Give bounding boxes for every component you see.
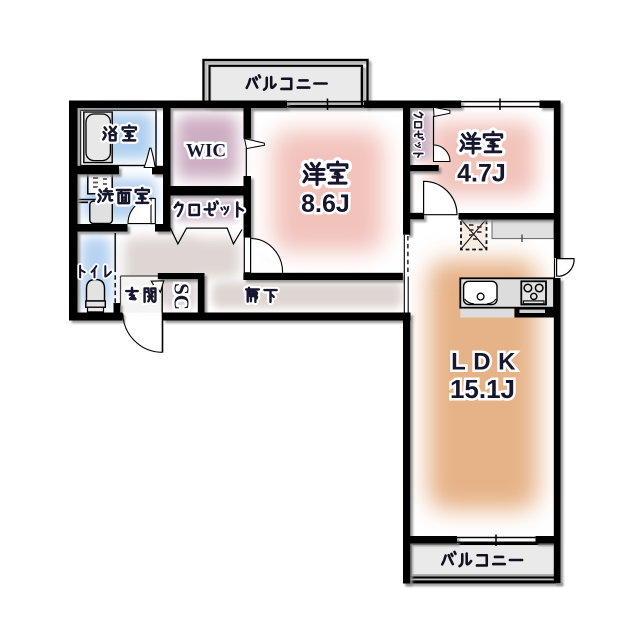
svg-text:15.1J: 15.1J — [450, 374, 515, 404]
svg-text:SC: SC — [170, 283, 194, 310]
svg-text:8.6J: 8.6J — [301, 190, 350, 218]
svg-text:LDK: LDK — [451, 349, 523, 376]
svg-text:WIC: WIC — [186, 141, 226, 162]
svg-text:4.7J: 4.7J — [457, 160, 506, 188]
